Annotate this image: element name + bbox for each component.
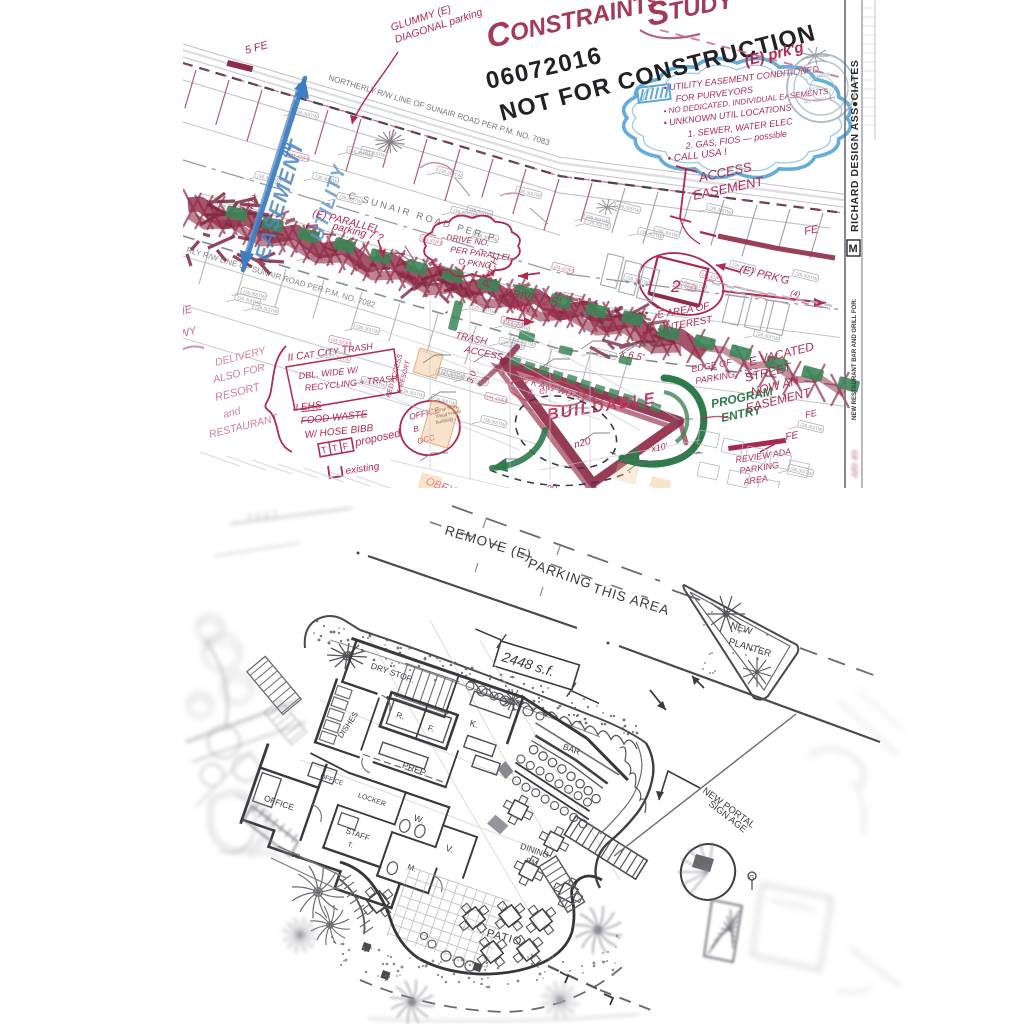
svg-text:RICHARD DESIGN ASS●CIATES: RICHARD DESIGN ASS●CIATES — [849, 60, 861, 232]
svg-text:M: M — [849, 243, 858, 255]
svg-text:FE: FE — [785, 430, 800, 443]
svg-text:25': 25' — [541, 292, 564, 311]
svg-text:ARI 49: ARI 49 — [850, 450, 860, 479]
svg-text:2: 2 — [670, 277, 681, 296]
svg-text:NEW RESTAURANT BAR AND GRILL F: NEW RESTAURANT BAR AND GRILL FOR: — [852, 298, 858, 420]
